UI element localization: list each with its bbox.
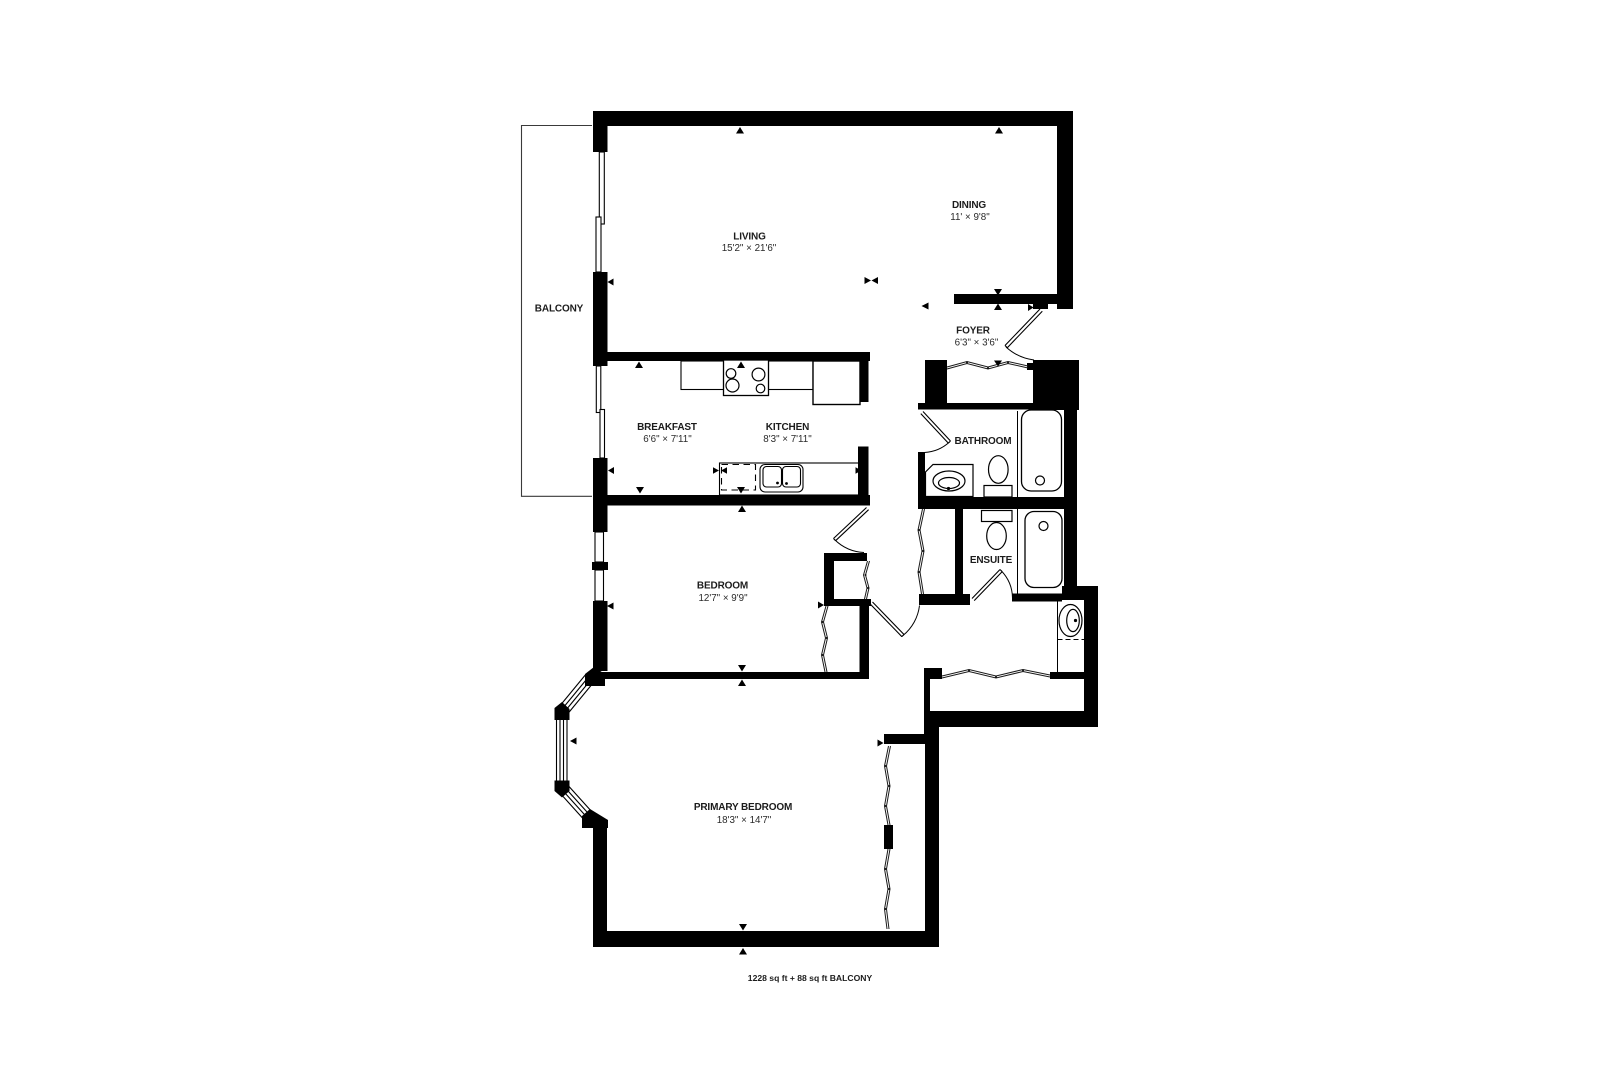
svg-text:BEDROOM: BEDROOM — [697, 581, 748, 592]
svg-text:6'3" × 3'6": 6'3" × 3'6" — [955, 338, 999, 349]
svg-text:DINING: DINING — [952, 200, 986, 211]
svg-text:BREAKFAST: BREAKFAST — [637, 422, 697, 433]
svg-text:8'3" × 7'11": 8'3" × 7'11" — [763, 434, 812, 445]
svg-text:FOYER: FOYER — [956, 326, 991, 337]
svg-text:LIVING: LIVING — [733, 232, 766, 243]
svg-text:1228 sq ft + 88 sq ft BALCONY: 1228 sq ft + 88 sq ft BALCONY — [748, 973, 873, 983]
svg-text:BALCONY: BALCONY — [535, 304, 584, 315]
svg-text:15'2" × 21'6": 15'2" × 21'6" — [722, 243, 777, 254]
svg-text:18'3" × 14'7": 18'3" × 14'7" — [717, 815, 772, 826]
svg-text:KITCHEN: KITCHEN — [766, 422, 809, 433]
svg-text:PRIMARY BEDROOM: PRIMARY BEDROOM — [694, 802, 792, 813]
svg-text:BATHROOM: BATHROOM — [955, 436, 1012, 447]
svg-text:12'7" × 9'9": 12'7" × 9'9" — [698, 593, 748, 604]
svg-text:11' × 9'8": 11' × 9'8" — [950, 212, 990, 223]
svg-text:ENSUITE: ENSUITE — [970, 555, 1013, 566]
svg-text:6'6" × 7'11": 6'6" × 7'11" — [643, 434, 692, 445]
